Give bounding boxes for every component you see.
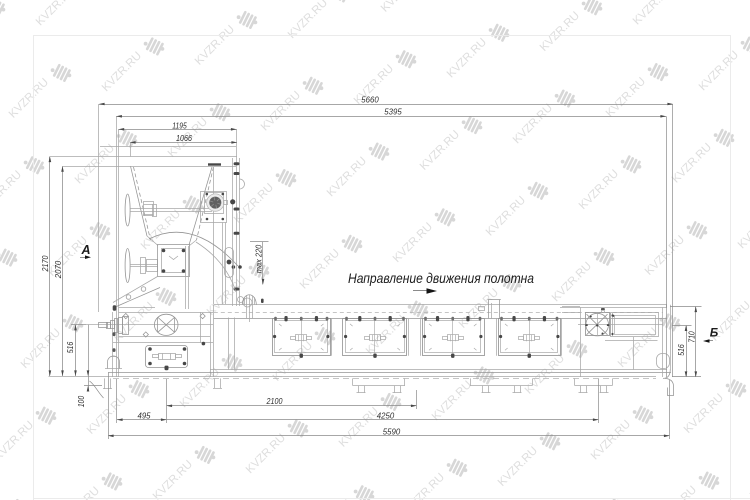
svg-text:2070: 2070 bbox=[53, 261, 63, 280]
svg-text:1195: 1195 bbox=[172, 121, 187, 131]
svg-text:1066: 1066 bbox=[176, 133, 192, 143]
svg-text:495: 495 bbox=[138, 411, 151, 421]
svg-text:4250: 4250 bbox=[377, 410, 395, 420]
svg-text:max 220: max 220 bbox=[253, 245, 263, 274]
svg-text:А: А bbox=[80, 243, 90, 257]
svg-text:2100: 2100 bbox=[266, 396, 283, 406]
svg-text:5660: 5660 bbox=[361, 94, 379, 104]
svg-text:100: 100 bbox=[76, 395, 86, 407]
svg-text:516: 516 bbox=[65, 341, 75, 353]
svg-text:2170: 2170 bbox=[40, 255, 50, 272]
svg-text:5395: 5395 bbox=[384, 107, 402, 117]
svg-text:Б: Б bbox=[710, 326, 719, 340]
svg-text:Направление движения полотна: Направление движения полотна bbox=[348, 271, 534, 286]
svg-text:710: 710 bbox=[687, 331, 697, 343]
svg-text:516: 516 bbox=[676, 344, 686, 356]
svg-text:5590: 5590 bbox=[383, 426, 401, 436]
